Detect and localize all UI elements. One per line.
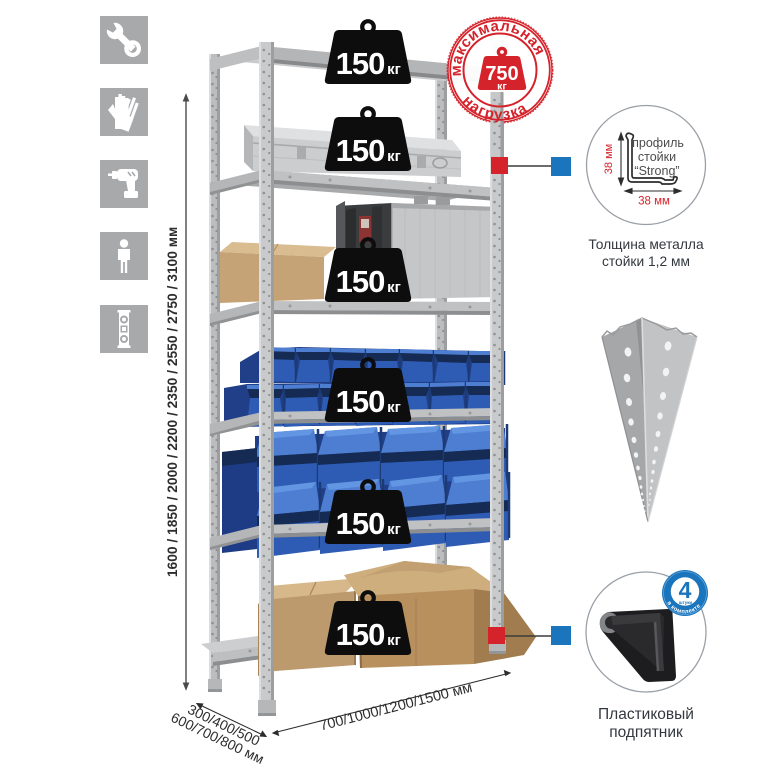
- svg-text:150: 150: [336, 506, 385, 541]
- svg-text:стойки: стойки: [638, 150, 676, 164]
- svg-text:кг: кг: [387, 148, 401, 165]
- svg-text:кг: кг: [497, 81, 507, 93]
- svg-text:150: 150: [336, 264, 385, 299]
- svg-text:подпятник: подпятник: [609, 724, 683, 741]
- svg-text:1600 / 1850 / 2000 / 2200 / 23: 1600 / 1850 / 2000 / 2200 / 2350 / 2550 …: [165, 227, 180, 577]
- svg-text:150: 150: [336, 384, 385, 419]
- svg-text:профиль: профиль: [632, 136, 684, 150]
- svg-text:150: 150: [336, 133, 385, 168]
- svg-text:38 мм: 38 мм: [603, 144, 615, 174]
- svg-text:штуки: штуки: [679, 600, 693, 605]
- svg-text:Толщина металла: Толщина металла: [588, 237, 704, 252]
- svg-text:150: 150: [336, 46, 385, 81]
- svg-text:150: 150: [336, 617, 385, 652]
- svg-text:кг: кг: [387, 399, 401, 416]
- svg-text:кг: кг: [387, 61, 401, 78]
- svg-text:кг: кг: [387, 521, 401, 538]
- svg-text:кг: кг: [387, 279, 401, 296]
- svg-text:Пластиковый: Пластиковый: [598, 706, 694, 723]
- svg-text:38 мм: 38 мм: [638, 196, 670, 208]
- svg-text:кг: кг: [387, 632, 401, 649]
- svg-text:стойки 1,2 мм: стойки 1,2 мм: [602, 254, 690, 269]
- svg-text:“Strong”: “Strong”: [634, 164, 679, 178]
